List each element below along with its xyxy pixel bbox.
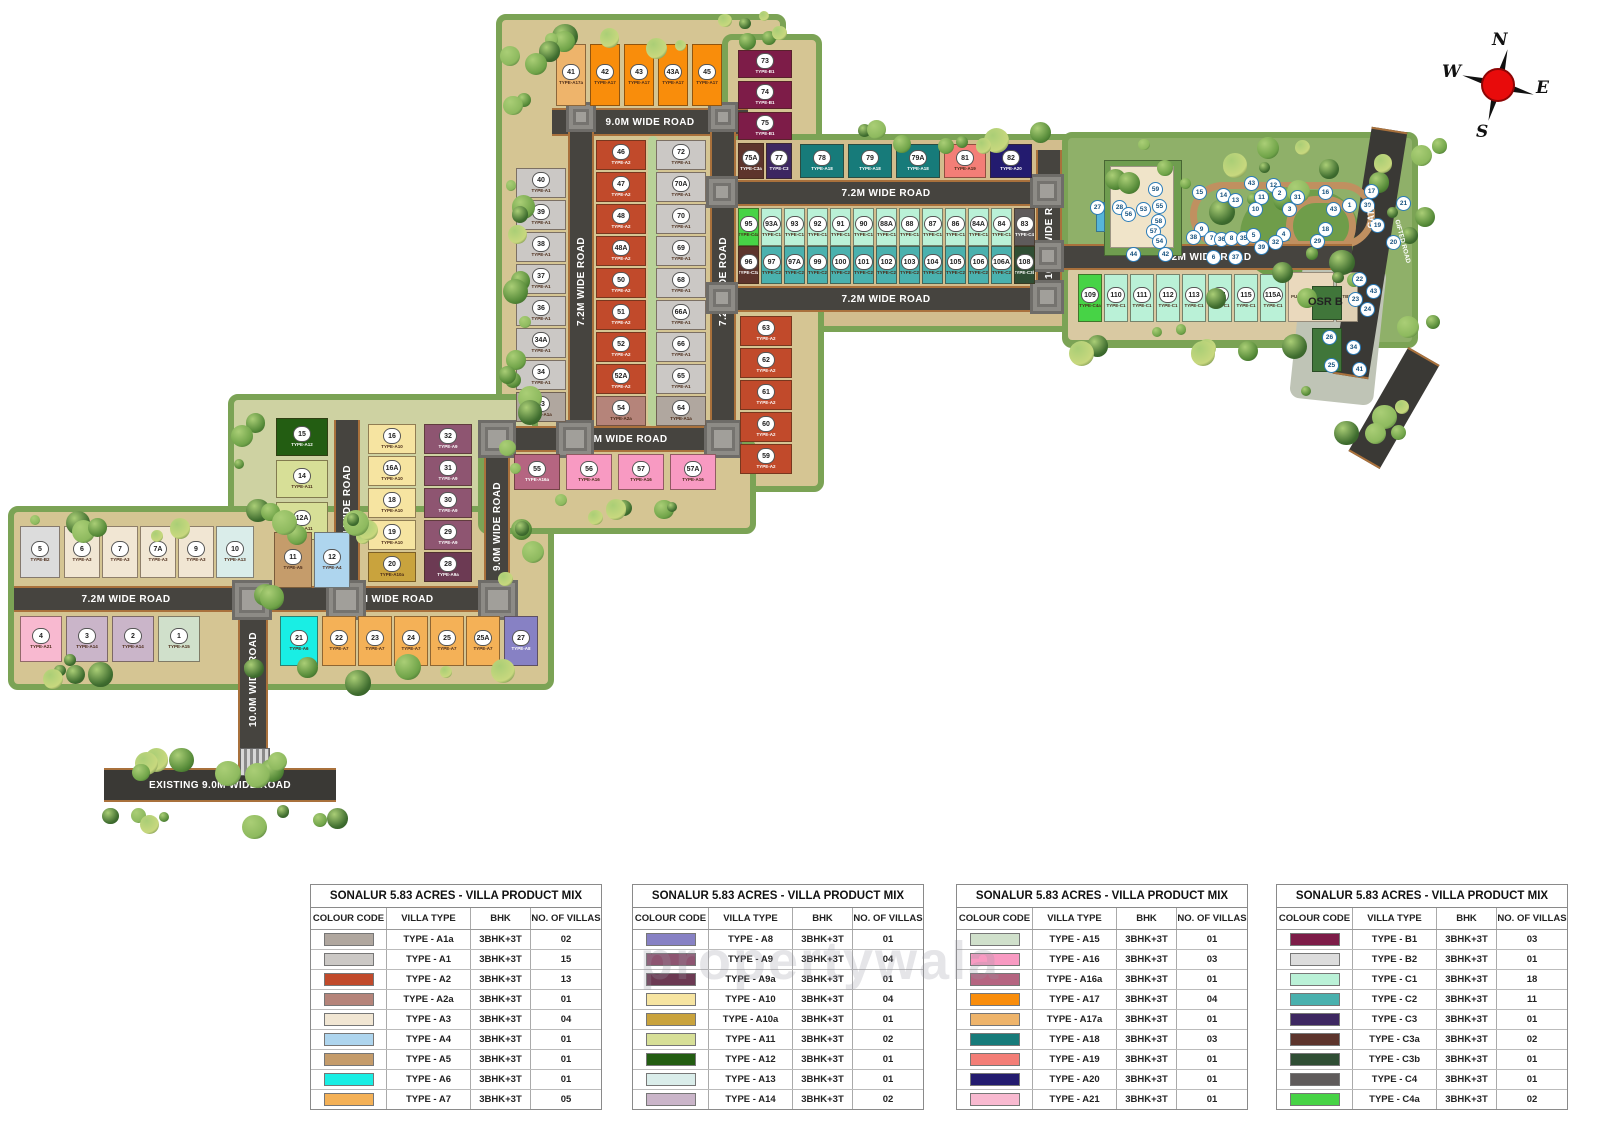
- villa-plot: 108TYPE-C3b: [1014, 246, 1035, 284]
- road: 7.2M WIDE ROAD: [268, 586, 510, 612]
- colour-swatch: [970, 953, 1020, 966]
- legend-cell-count: 02: [1497, 1090, 1567, 1109]
- villa-type-label: TYPE-A11: [291, 485, 312, 490]
- villa-type-label: TYPE-A20: [1000, 167, 1022, 172]
- villa-plot: 7TYPE-A3: [102, 526, 138, 578]
- villa-number: 69: [672, 240, 690, 256]
- villa-type-label: TYPE-C1: [831, 233, 850, 238]
- villa-number: 22: [330, 630, 348, 646]
- legend-cell-bhk: 3BHK+3T: [1437, 1090, 1497, 1109]
- villa-number: 70: [672, 208, 690, 224]
- tree: [132, 764, 150, 782]
- legend-table-row: TYPE - A183BHK+3T03: [957, 1030, 1247, 1050]
- villa-plot: 70ATYPE-A1: [656, 172, 706, 202]
- villa-type-label: TYPE-A14: [76, 645, 98, 650]
- legend-cell-colour: [1277, 1030, 1353, 1049]
- amenity-marker: 6: [1206, 250, 1221, 265]
- villa-type-label: TYPE-C3a: [740, 167, 762, 172]
- legend-table-row: TYPE - A33BHK+3T04: [311, 1010, 601, 1030]
- villa-type-label: TYPE-C1: [1132, 304, 1151, 309]
- villa-number: 41: [562, 64, 580, 80]
- villa-type-label: TYPE-A2: [611, 321, 630, 326]
- legend-cell-type: TYPE - C4a: [1353, 1090, 1437, 1109]
- legend-header-cell: BHK: [1437, 908, 1497, 929]
- villa-plot: 66ATYPE-A1: [656, 300, 706, 330]
- amenity-marker: 24: [1360, 302, 1375, 317]
- tree: [1069, 341, 1094, 366]
- villa-type-label: TYPE-B1: [755, 101, 774, 106]
- legend-cell-colour: [633, 990, 709, 1009]
- villa-type-label: TYPE-A10: [381, 445, 403, 450]
- legend-cell-colour: [311, 990, 387, 1009]
- tree: [519, 316, 531, 328]
- legend-cell-colour: [633, 1050, 709, 1069]
- amenity-marker: 17: [1364, 184, 1379, 199]
- colour-swatch: [646, 993, 696, 1006]
- villa-number: 100: [832, 254, 850, 270]
- road: 7.2M WIDE ROAD: [736, 286, 1036, 312]
- villa-plot: 72TYPE-A1: [656, 140, 706, 170]
- legend-cell-bhk: 3BHK+3T: [1437, 1010, 1497, 1029]
- legend-header-cell: VILLA TYPE: [1353, 908, 1437, 929]
- villa-type-label: TYPE-C2: [900, 271, 919, 276]
- villa-type-label: TYPE-B1: [755, 70, 774, 75]
- villa-number: 12: [323, 549, 341, 565]
- villa-number: 81: [956, 150, 974, 166]
- amenity-marker: 13: [1228, 193, 1243, 208]
- tree: [345, 670, 370, 695]
- villa-plot: 51TYPE-A2: [596, 300, 646, 330]
- villa-plot: 104TYPE-C2: [922, 246, 943, 284]
- colour-swatch: [970, 1073, 1020, 1086]
- villa-number: 14: [293, 468, 311, 484]
- villa-type-label: TYPE-A7: [401, 647, 420, 652]
- compass-center: [1481, 68, 1515, 102]
- legend-table-row: TYPE - C43BHK+3T01: [1277, 1070, 1567, 1090]
- legend-cell-colour: [1277, 950, 1353, 969]
- legend-table-row: TYPE - A73BHK+3T05: [311, 1090, 601, 1109]
- villa-number: 21: [290, 630, 308, 646]
- tree: [508, 225, 527, 244]
- legend-cell-type: TYPE - A9: [709, 950, 793, 969]
- villa-plot: 52ATYPE-A2: [596, 364, 646, 394]
- legend-cell-type: TYPE - A3: [387, 1010, 471, 1029]
- legend-table-row: TYPE - A9a3BHK+3T01: [633, 970, 923, 990]
- villa-plot: 115TYPE-C1: [1234, 274, 1258, 322]
- legend-table-row: TYPE - A23BHK+3T13: [311, 970, 601, 990]
- villa-plot: 66TYPE-A1: [656, 332, 706, 362]
- villa-number: 82: [1002, 150, 1020, 166]
- tree: [606, 499, 627, 520]
- legend-cell-bhk: 3BHK+3T: [793, 930, 853, 949]
- tree: [1415, 207, 1435, 227]
- villa-number: 40: [532, 172, 550, 188]
- villa-plot: 14TYPE-A11: [276, 460, 328, 498]
- villa-plot: 47TYPE-A2: [596, 172, 646, 202]
- legend-cell-colour: [957, 1070, 1033, 1089]
- colour-swatch: [646, 1093, 696, 1106]
- villa-type-label: TYPE-C1: [808, 233, 827, 238]
- villa-plot: 93ATYPE-C1: [761, 208, 782, 246]
- road-intersection: [706, 176, 738, 208]
- legend-cell-bhk: 3BHK+3T: [1437, 970, 1497, 989]
- legend-cell-bhk: 3BHK+3T: [793, 1010, 853, 1029]
- villa-number: 74: [756, 84, 774, 100]
- villa-plot: 46TYPE-A2: [596, 140, 646, 170]
- tree: [277, 805, 289, 817]
- legend-cell-bhk: 3BHK+3T: [471, 970, 531, 989]
- villa-number: 84: [993, 216, 1011, 232]
- legend-cell-count: 05: [531, 1090, 601, 1109]
- amenity-marker: 27: [1090, 200, 1105, 215]
- colour-swatch: [324, 1013, 374, 1026]
- villa-plot: 92TYPE-C1: [807, 208, 828, 246]
- tree: [675, 40, 686, 51]
- villa-type-label: TYPE-C3: [769, 167, 788, 172]
- villa-type-label: TYPE-A8: [511, 647, 530, 652]
- villa-type-label: TYPE-A2: [756, 465, 775, 470]
- villa-number: 73: [756, 53, 774, 69]
- villa-type-label: TYPE-A3: [148, 558, 167, 563]
- legend-header-cell: NO. OF VILLAS: [1177, 908, 1247, 929]
- legend-cell-count: 03: [1177, 1030, 1247, 1049]
- legend-cell-count: 01: [1177, 1010, 1247, 1029]
- legend-header-cell: COLOUR CODE: [957, 908, 1033, 929]
- villa-type-label: TYPE-B1: [755, 132, 774, 137]
- villa-plot: 106ATYPE-C2: [991, 246, 1012, 284]
- villa-type-label: TYPE-A16: [630, 478, 652, 483]
- villa-number: 83: [1016, 216, 1034, 232]
- legend-cell-type: TYPE - C1: [1353, 970, 1437, 989]
- legend-cell-bhk: 3BHK+3T: [471, 990, 531, 1009]
- legend-cell-colour: [311, 930, 387, 949]
- colour-swatch: [1290, 1093, 1340, 1106]
- amenity-marker: 41: [1352, 362, 1367, 377]
- legend-cell-bhk: 3BHK+3T: [1117, 1070, 1177, 1089]
- road-intersection: [704, 420, 742, 458]
- legend-cell-colour: [957, 1090, 1033, 1109]
- legend-cell-type: TYPE - A10: [709, 990, 793, 1009]
- villa-number: 20: [383, 556, 401, 572]
- road: 7.2M WIDE ROAD: [14, 586, 238, 612]
- villa-plot: 97TYPE-C2: [761, 246, 782, 284]
- villa-number: 27: [512, 630, 530, 646]
- colour-swatch: [324, 993, 374, 1006]
- tree: [1138, 139, 1150, 151]
- legend-cell-count: 01: [853, 930, 923, 949]
- legend-cell-bhk: 3BHK+3T: [471, 1070, 531, 1089]
- legend-cell-count: 04: [531, 1010, 601, 1029]
- villa-plot: 109TYPE-C4a: [1078, 274, 1102, 322]
- legend-table-row: TYPE - A153BHK+3T01: [957, 930, 1247, 950]
- legend-cell-count: 02: [853, 1090, 923, 1109]
- villa-number: 95: [740, 216, 758, 232]
- legend-cell-bhk: 3BHK+3T: [793, 990, 853, 1009]
- villa-type-label: TYPE-A1a: [670, 417, 692, 422]
- legend-cell-bhk: 3BHK+3T: [1117, 1050, 1177, 1069]
- legend-cell-colour: [1277, 990, 1353, 1009]
- legend-table-row: TYPE - C33BHK+3T01: [1277, 1010, 1567, 1030]
- legend-cell-colour: [311, 970, 387, 989]
- legend-table-row: TYPE - A103BHK+3T04: [633, 990, 923, 1010]
- villa-number: 50: [612, 272, 630, 288]
- villa-number: 51: [612, 304, 630, 320]
- villa-plot: 102TYPE-C2: [876, 246, 897, 284]
- villa-plot: 20TYPE-A10a: [368, 552, 416, 582]
- legend-table-row: TYPE - A10a3BHK+3T01: [633, 1010, 923, 1030]
- legend-cell-count: 01: [531, 1030, 601, 1049]
- colour-swatch: [970, 993, 1020, 1006]
- villa-plot: 48ATYPE-A2: [596, 236, 646, 266]
- legend-cell-count: 03: [1177, 950, 1247, 969]
- villa-number: 4: [32, 628, 50, 644]
- villa-type-label: TYPE-A2: [756, 369, 775, 374]
- tree: [245, 763, 269, 787]
- road-label: 9.0M WIDE ROAD: [606, 117, 695, 128]
- amenity-marker: 2: [1272, 186, 1287, 201]
- tree: [1334, 421, 1358, 445]
- legend-cell-colour: [1277, 1010, 1353, 1029]
- legend-cell-count: 01: [853, 1070, 923, 1089]
- villa-number: 11: [284, 549, 302, 565]
- villa-type-label: TYPE-A9a: [437, 573, 459, 578]
- villa-number: 10: [226, 541, 244, 557]
- villa-type-label: TYPE-A10: [381, 477, 403, 482]
- villa-number: 79: [861, 150, 879, 166]
- villa-type-label: TYPE-A17: [662, 81, 684, 86]
- legend-table-row: TYPE - C4a3BHK+3T02: [1277, 1090, 1567, 1109]
- villa-number: 34A: [532, 332, 550, 348]
- villa-plot: 42TYPE-A17: [590, 44, 620, 106]
- road-label: 7.2M WIDE ROAD: [842, 294, 931, 305]
- legend-cell-count: 01: [1177, 1090, 1247, 1109]
- legend-cell-count: 01: [1177, 930, 1247, 949]
- villa-type-label: TYPE-A17: [628, 81, 650, 86]
- villa-type-label: TYPE-A2: [611, 353, 630, 358]
- villa-type-label: TYPE-C1: [1158, 304, 1177, 309]
- villa-type-label: TYPE-A16: [682, 478, 704, 483]
- villa-plot: 83TYPE-C4: [1014, 208, 1035, 246]
- tree: [1426, 315, 1440, 329]
- tree: [1374, 154, 1393, 173]
- villa-number: 79A: [909, 150, 927, 166]
- legend-cell-type: TYPE - A14: [709, 1090, 793, 1109]
- legend-table-header: COLOUR CODEVILLA TYPEBHKNO. OF VILLAS: [311, 908, 601, 930]
- tree: [1223, 153, 1247, 177]
- villa-type-label: TYPE-A6: [289, 647, 308, 652]
- villa-plot: 79TYPE-A18: [848, 144, 892, 178]
- legend-table-row: TYPE - A93BHK+3T04: [633, 950, 923, 970]
- villa-plot: 106TYPE-C2: [968, 246, 989, 284]
- legend-cell-count: 02: [1497, 1030, 1567, 1049]
- legend-header-cell: VILLA TYPE: [387, 908, 471, 929]
- legend-cell-bhk: 3BHK+3T: [1117, 1010, 1177, 1029]
- legend-cell-count: 03: [1497, 930, 1567, 949]
- legend-header-cell: NO. OF VILLAS: [1497, 908, 1567, 929]
- colour-swatch: [324, 1033, 374, 1046]
- legend-cell-colour: [957, 970, 1033, 989]
- legend-cell-colour: [1277, 970, 1353, 989]
- villa-number: 43A: [664, 64, 682, 80]
- villa-type-label: TYPE-A18: [859, 167, 881, 172]
- villa-type-label: TYPE-A2: [756, 401, 775, 406]
- villa-type-label: TYPE-A2: [611, 161, 630, 166]
- villa-plot: 112TYPE-C1: [1156, 274, 1180, 322]
- legend-cell-type: TYPE - A2a: [387, 990, 471, 1009]
- tree: [588, 510, 603, 525]
- villa-number: 9: [187, 541, 205, 557]
- villa-number: 72: [672, 144, 690, 160]
- tree: [646, 38, 667, 59]
- villa-number: 6: [73, 541, 91, 557]
- villa-plot: 88ATYPE-C1: [876, 208, 897, 246]
- tree: [140, 815, 160, 835]
- amenity-marker: 34: [1346, 340, 1361, 355]
- villa-number: 16A: [383, 460, 401, 476]
- amenity-marker: 10: [1248, 202, 1263, 217]
- legend-table-row: TYPE - A163BHK+3T03: [957, 950, 1247, 970]
- villa-number: 97: [763, 254, 781, 270]
- villa-plot: 16ATYPE-A10: [368, 456, 416, 486]
- villa-number: 64: [672, 400, 690, 416]
- legend-table: SONALUR 5.83 ACRES - VILLA PRODUCT MIXCO…: [956, 884, 1248, 1110]
- villa-number: 43: [630, 64, 648, 80]
- villa-type-label: TYPE-A1: [531, 285, 550, 290]
- tree: [1391, 425, 1406, 440]
- tree: [1306, 247, 1319, 260]
- colour-swatch: [970, 1013, 1020, 1026]
- amenity-marker: 44: [1126, 247, 1141, 262]
- tree: [512, 206, 528, 222]
- legend-cell-count: 01: [531, 1070, 601, 1089]
- amenity-marker: 32: [1268, 235, 1283, 250]
- legend-cell-type: TYPE - B1: [1353, 930, 1437, 949]
- villa-type-label: TYPE-C4a: [738, 233, 759, 238]
- villa-type-label: TYPE-A1: [531, 317, 550, 322]
- villa-plot: 23TYPE-A7: [358, 616, 392, 666]
- tree: [88, 518, 107, 537]
- villa-type-label: TYPE-C1: [877, 233, 896, 238]
- legend-cell-bhk: 3BHK+3T: [1437, 990, 1497, 1009]
- tree: [215, 761, 240, 786]
- villa-type-label: TYPE-C2: [831, 271, 850, 276]
- legend-cell-bhk: 3BHK+3T: [1437, 950, 1497, 969]
- legend-cell-count: 18: [1497, 970, 1567, 989]
- villa-number: 75A: [742, 150, 760, 166]
- villa-number: 87: [924, 216, 942, 232]
- villa-number: 86: [947, 216, 965, 232]
- villa-type-label: TYPE-A1: [531, 253, 550, 258]
- villa-plot: 25ATYPE-A7: [466, 616, 500, 666]
- tree: [499, 366, 516, 383]
- villa-type-label: TYPE-A7: [437, 647, 456, 652]
- colour-swatch: [1290, 1073, 1340, 1086]
- villa-plot: 5TYPE-B2: [20, 526, 60, 578]
- villa-plot: 103TYPE-C2: [899, 246, 920, 284]
- villa-number: 46: [612, 144, 630, 160]
- villa-number: 70A: [672, 176, 690, 192]
- villa-number: 38: [532, 236, 550, 252]
- villa-plot: 68TYPE-A1: [656, 268, 706, 298]
- villa-number: 1: [170, 628, 188, 644]
- villa-type-label: TYPE-A7: [365, 647, 384, 652]
- villa-plot: 84ATYPE-C1: [968, 208, 989, 246]
- tree: [506, 180, 517, 191]
- villa-number: 105: [947, 254, 965, 270]
- amenity-marker: 25: [1324, 358, 1339, 373]
- colour-swatch: [324, 933, 374, 946]
- legend-cell-type: TYPE - A2: [387, 970, 471, 989]
- villa-plot: 2TYPE-A14: [112, 616, 154, 662]
- villa-number: 7: [111, 541, 129, 557]
- legend-cell-colour: [633, 1010, 709, 1029]
- villa-type-label: TYPE-C4: [1015, 233, 1034, 238]
- amenity-marker: 3: [1282, 202, 1297, 217]
- legend-cell-bhk: 3BHK+3T: [1437, 1070, 1497, 1089]
- compass-south-label: S: [1476, 122, 1488, 142]
- villa-plot: 18TYPE-A10: [368, 488, 416, 518]
- villa-type-label: TYPE-C2: [808, 271, 827, 276]
- legend-cell-type: TYPE - A1: [387, 950, 471, 969]
- legend-table-row: TYPE - C23BHK+3T11: [1277, 990, 1567, 1010]
- legend-cell-bhk: 3BHK+3T: [793, 1090, 853, 1109]
- road-intersection: [706, 282, 738, 314]
- villa-type-label: TYPE-A14: [122, 645, 144, 650]
- tree: [268, 752, 287, 771]
- legend-cell-bhk: 3BHK+3T: [793, 1030, 853, 1049]
- villa-number: 16: [383, 428, 401, 444]
- villa-plot: 86TYPE-C1: [945, 208, 966, 246]
- villa-number: 29: [439, 524, 457, 540]
- villa-number: 77: [770, 150, 788, 166]
- amenity-marker: 43: [1366, 284, 1381, 299]
- tree: [867, 120, 886, 139]
- legend-table: SONALUR 5.83 ACRES - VILLA PRODUCT MIXCO…: [1276, 884, 1568, 1110]
- legend-cell-colour: [957, 1050, 1033, 1069]
- villa-number: 18: [383, 492, 401, 508]
- villa-type-label: TYPE-A18: [811, 167, 833, 172]
- colour-swatch: [1290, 1033, 1340, 1046]
- villa-number: 34: [532, 364, 550, 380]
- villa-number: 31: [439, 460, 457, 476]
- villa-plot: 84TYPE-C1: [991, 208, 1012, 246]
- villa-type-label: TYPE-A13: [224, 558, 246, 563]
- villa-number: 93A: [763, 216, 781, 232]
- amenity-marker: 53: [1136, 202, 1151, 217]
- amenity-marker: 16: [1318, 185, 1333, 200]
- amenity-marker: 1: [1342, 198, 1357, 213]
- tree: [1329, 250, 1355, 276]
- legend-cell-bhk: 3BHK+3T: [1117, 1030, 1177, 1049]
- legend-cell-bhk: 3BHK+3T: [471, 1010, 531, 1029]
- villa-plot: 64TYPE-A1a: [656, 396, 706, 426]
- villa-type-label: TYPE-A1: [671, 225, 690, 230]
- villa-number: 99: [809, 254, 827, 270]
- villa-number: 57A: [684, 461, 702, 477]
- legend-cell-count: 01: [1497, 1010, 1567, 1029]
- villa-type-label: TYPE-A12: [291, 443, 313, 448]
- villa-type-label: TYPE-A2: [611, 193, 630, 198]
- colour-swatch: [324, 953, 374, 966]
- villa-number: 30: [439, 492, 457, 508]
- compass-rose: N E S W: [1448, 30, 1548, 150]
- villa-plot: 45TYPE-A17: [692, 44, 722, 106]
- tree: [976, 138, 991, 153]
- villa-number: 97A: [786, 254, 804, 270]
- legend-table-row: TYPE - A113BHK+3T02: [633, 1030, 923, 1050]
- tree: [102, 808, 118, 824]
- tree: [64, 654, 76, 666]
